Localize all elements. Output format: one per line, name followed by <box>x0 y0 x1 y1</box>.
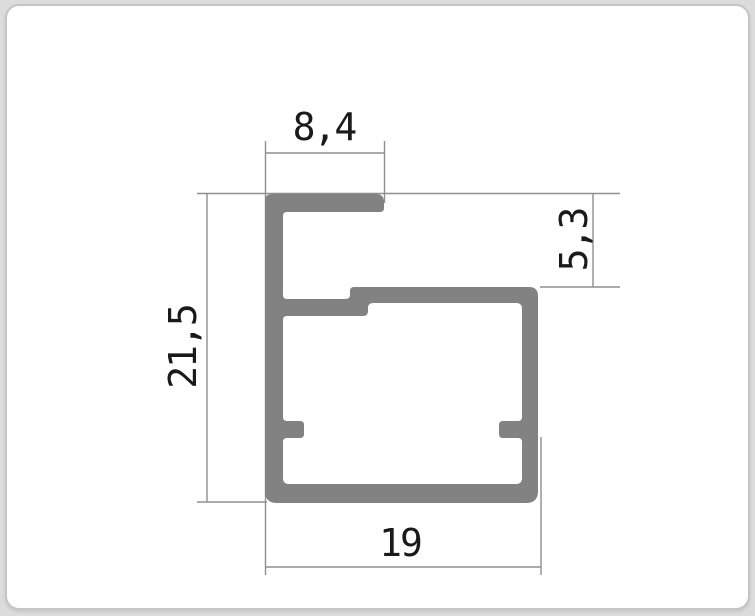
dimension-lines <box>197 141 620 575</box>
dimension-label-slot-height: 5,3 <box>552 209 596 272</box>
dimension-label-bottom-width: 19 <box>379 521 421 565</box>
dimension-label-overall-height: 21,5 <box>161 305 205 389</box>
dimension-label-top-width: 8,4 <box>293 105 357 149</box>
profile-shape <box>265 194 538 503</box>
page-background: 8,4 21,5 5,3 19 <box>0 0 755 616</box>
profile-drawing: 8,4 21,5 5,3 19 <box>0 0 755 616</box>
